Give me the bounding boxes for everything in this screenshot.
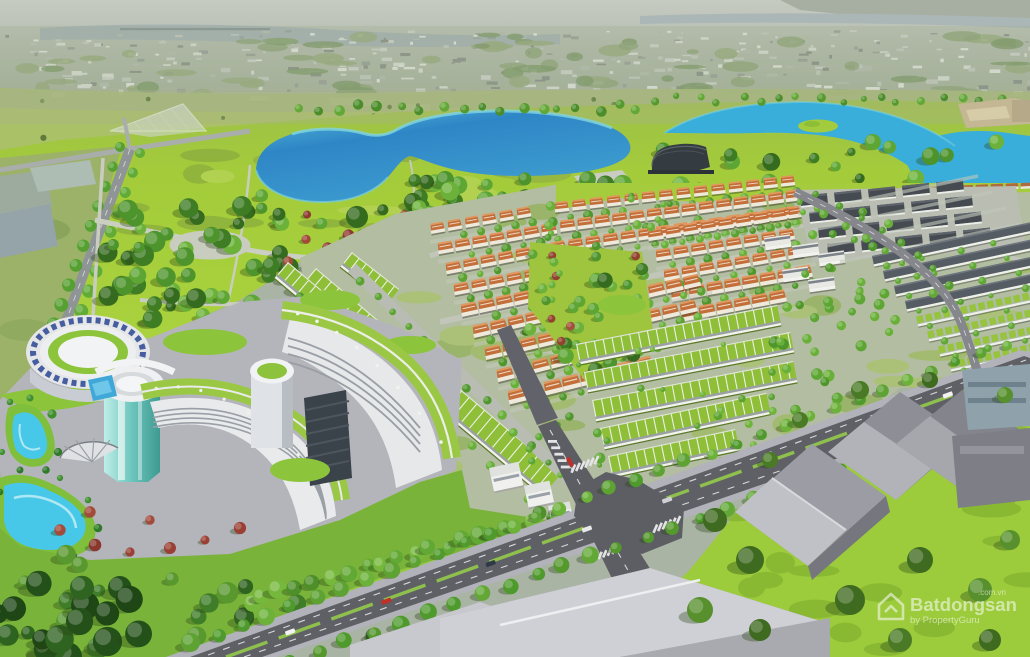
svg-text:.com.vn: .com.vn — [978, 588, 1006, 597]
svg-text:by PropertyGuru: by PropertyGuru — [910, 615, 980, 626]
svg-text:Batdongsan: Batdongsan — [910, 594, 1017, 615]
